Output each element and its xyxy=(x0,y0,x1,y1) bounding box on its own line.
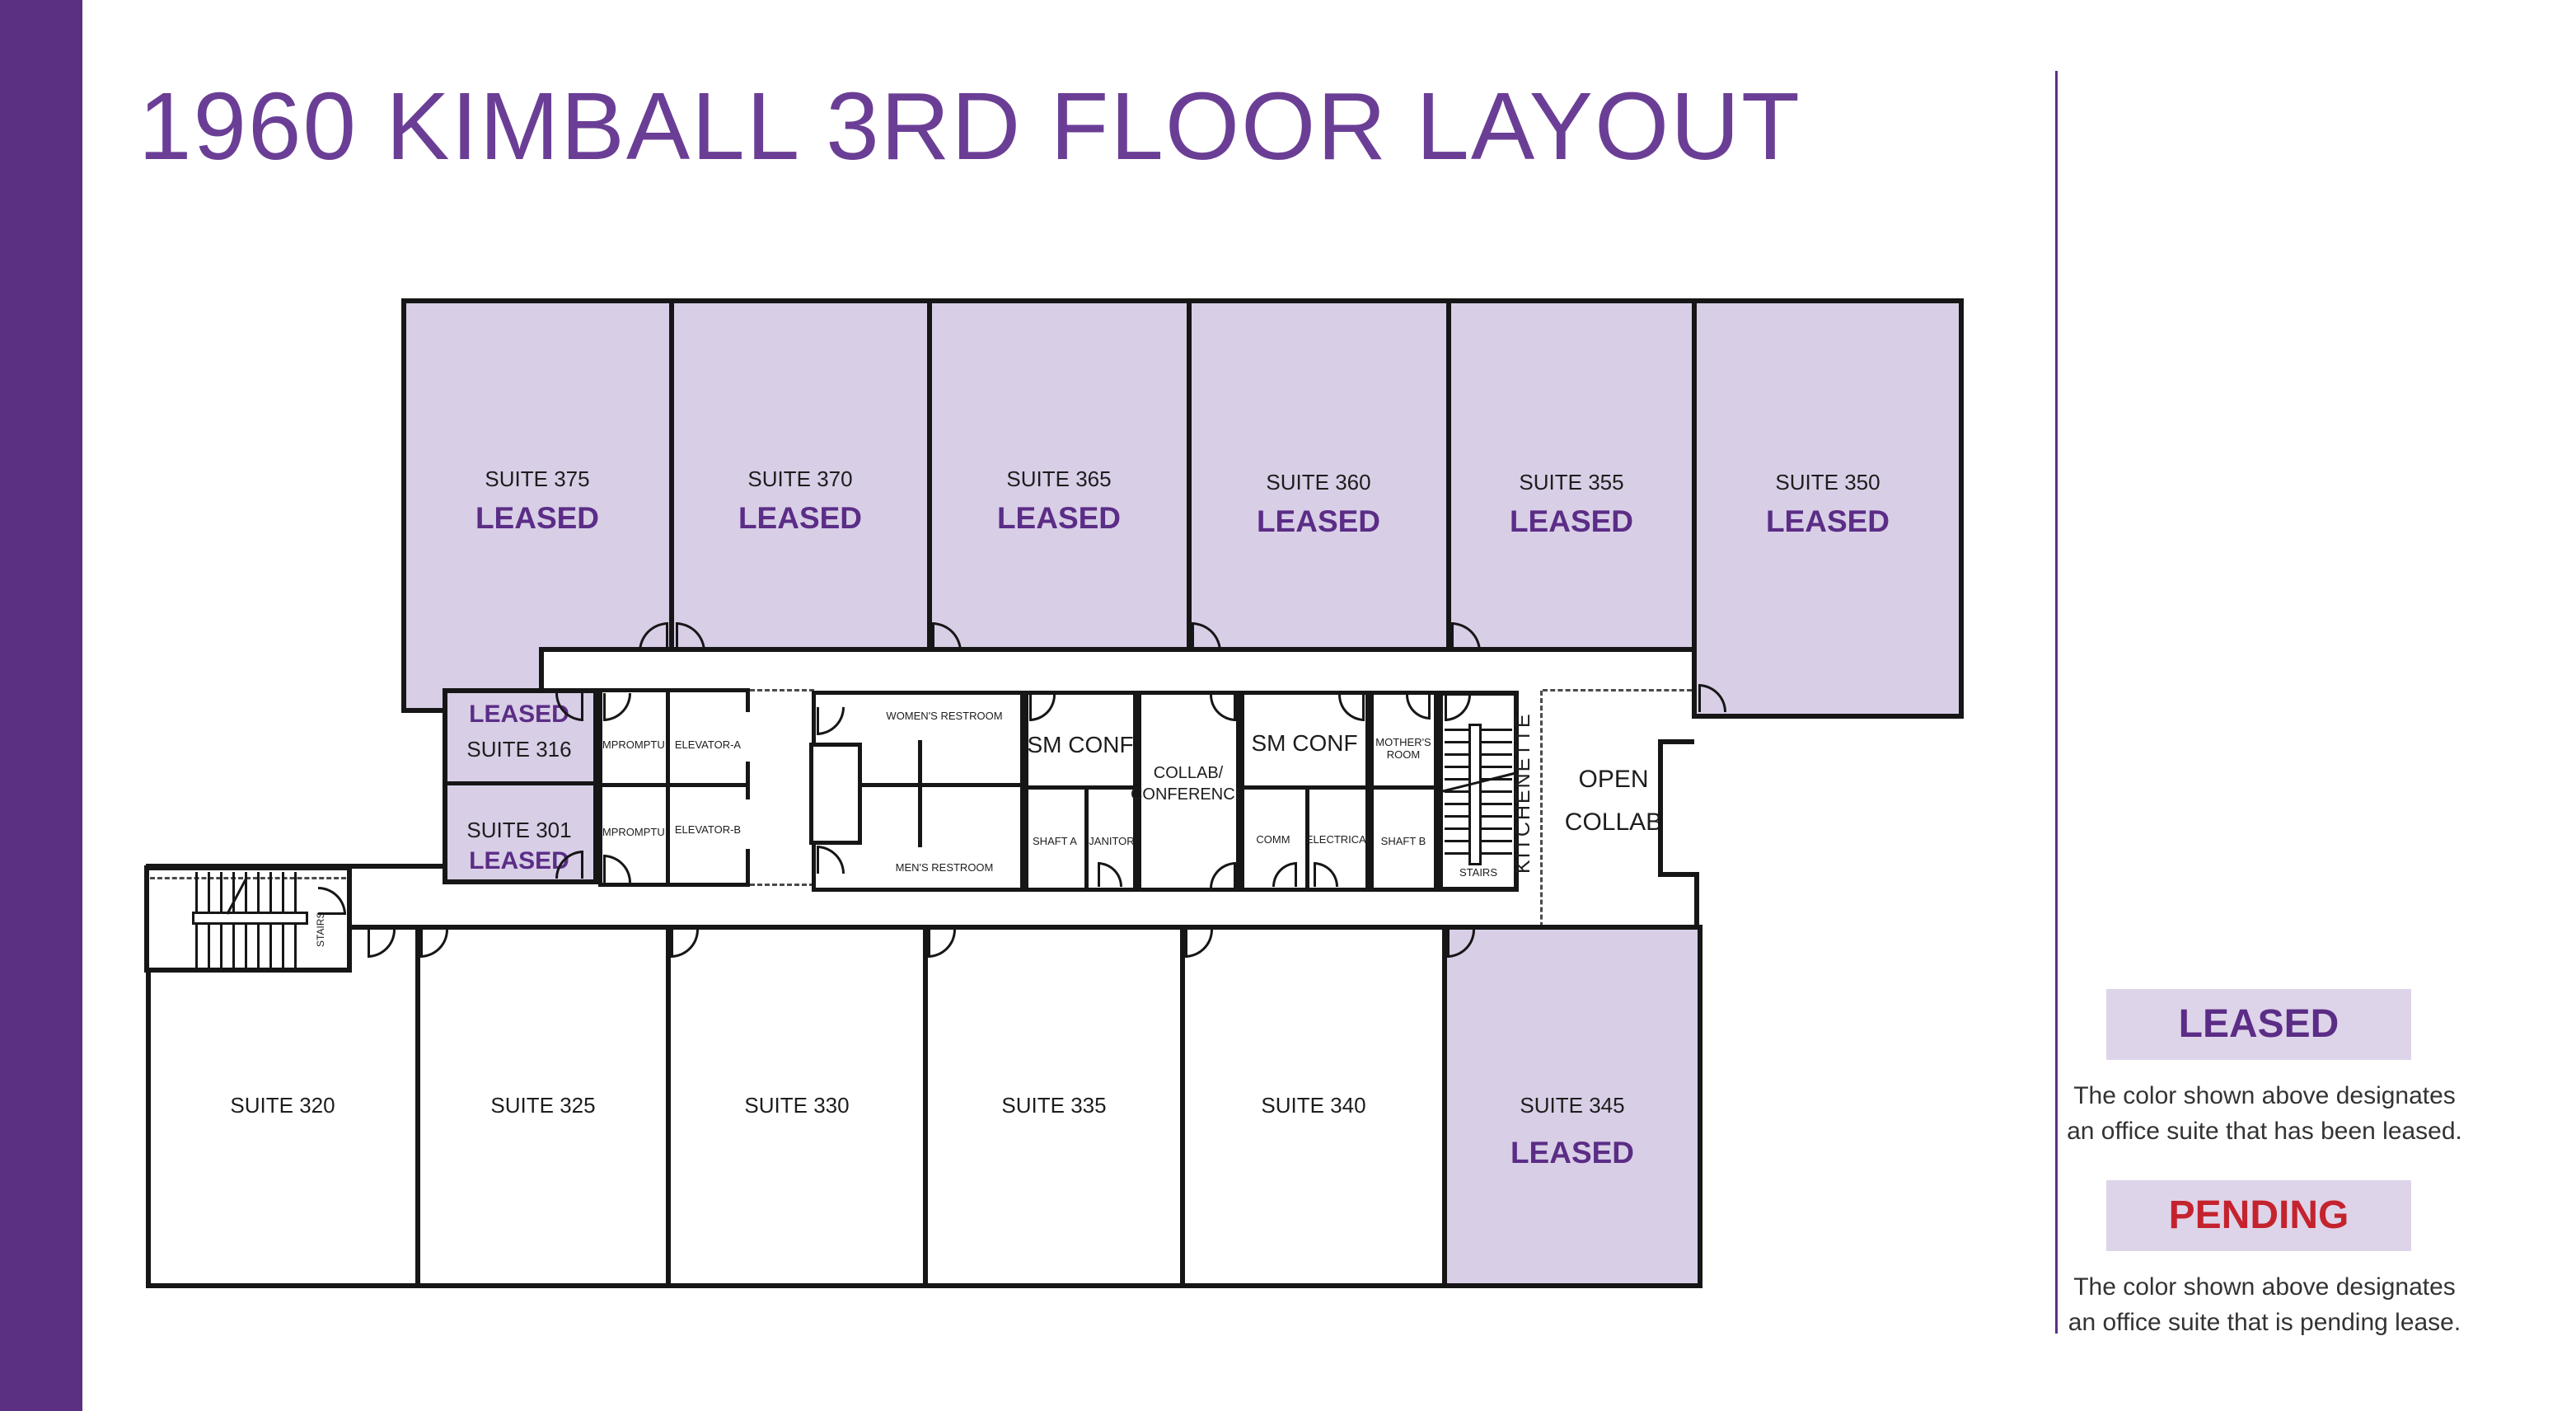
label-suite-301-name: SUITE 301 xyxy=(437,818,602,842)
dashed-boundary xyxy=(750,884,814,886)
label-sm-conf-1: SM CONF xyxy=(1006,732,1155,758)
label-womens-restroom: WOMEN'S RESTROOM xyxy=(862,710,1027,722)
label-suite-350-status: LEASED xyxy=(1745,504,1910,540)
wall xyxy=(445,781,596,785)
wall xyxy=(918,740,922,847)
label-suite-355-status: LEASED xyxy=(1489,504,1654,540)
label-open-collab-line1: OPEN xyxy=(1578,766,1648,793)
label-suite-360-status: LEASED xyxy=(1236,504,1401,540)
label-suite-320-name: SUITE 320 xyxy=(200,1093,365,1118)
label-suite-335-name: SUITE 335 xyxy=(972,1093,1136,1118)
label-suite-345-status: LEASED xyxy=(1490,1136,1655,1171)
label-suite-340-name: SUITE 340 xyxy=(1231,1093,1396,1118)
legend-leased-description: The color shown above designates an offi… xyxy=(2017,1078,2512,1149)
label-mens-restroom: MEN'S RESTROOM xyxy=(862,861,1027,874)
label-impromptu-a: IMPROMPTU xyxy=(595,738,669,751)
dashed-boundary xyxy=(1543,689,1692,691)
label-suite-345-name: SUITE 345 xyxy=(1490,1093,1655,1118)
label-suite-370-name: SUITE 370 xyxy=(718,466,883,491)
label-suite-325-name: SUITE 325 xyxy=(461,1093,625,1118)
page-title: 1960 KIMBALL 3RD FLOOR LAYOUT xyxy=(138,71,1801,181)
room-impromptu-elevators xyxy=(598,688,750,887)
legend-pending-desc-line1: The color shown above designates xyxy=(2073,1273,2456,1301)
stair-treads xyxy=(195,872,305,915)
label-open-collab-line2: COLLAB xyxy=(1565,809,1662,836)
label-elevator-b: ELEVATOR-B xyxy=(667,823,749,836)
label-shaft-b: SHAFT B xyxy=(1362,835,1445,847)
legend-pending-desc-line2: an office suite that is pending lease. xyxy=(2068,1309,2461,1336)
label-collab-line1: COLLAB/ xyxy=(1154,764,1223,782)
label-suite-360-name: SUITE 360 xyxy=(1236,470,1401,495)
label-suite-365-name: SUITE 365 xyxy=(977,466,1141,491)
legend-leased-desc-line2: an office suite that has been leased. xyxy=(2067,1118,2462,1145)
stair-stringer xyxy=(1468,724,1482,865)
wall xyxy=(601,783,747,787)
label-suite-375-status: LEASED xyxy=(455,501,620,537)
label-elevator-a: ELEVATOR-A xyxy=(667,738,749,751)
label-suite-355-name: SUITE 355 xyxy=(1489,470,1654,495)
legend-pending-description: The color shown above designates an offi… xyxy=(2017,1269,2512,1340)
label-suite-375-name: SUITE 375 xyxy=(455,466,620,491)
stair-stringer xyxy=(192,912,308,925)
dashed-boundary xyxy=(750,689,814,691)
stair-treads xyxy=(195,925,305,968)
wall xyxy=(857,783,1022,787)
wall xyxy=(666,691,670,884)
legend-leased-desc-line1: The color shown above designates xyxy=(2073,1082,2456,1109)
label-suite-316-name: SUITE 316 xyxy=(437,737,602,762)
floor-plan-page: 1960 KIMBALL 3RD FLOOR LAYOUT SUITE 375 … xyxy=(0,0,2576,1411)
label-suite-365-status: LEASED xyxy=(977,501,1141,537)
label-impromptu-b: IMPROMPTU xyxy=(595,826,669,838)
label-sm-conf-2: SM CONF xyxy=(1230,730,1379,757)
label-stairs-core: STAIRS xyxy=(1437,866,1520,879)
room-mothers-shaft-b xyxy=(1370,691,1438,892)
label-suite-330-name: SUITE 330 xyxy=(714,1093,879,1118)
restroom-alcove xyxy=(809,743,862,845)
label-mothers-line2: ROOM xyxy=(1387,748,1420,761)
label-suite-370-status: LEASED xyxy=(718,501,883,537)
label-mothers-line1: MOTHER'S xyxy=(1375,736,1431,748)
wall xyxy=(1694,872,1699,931)
elevator-b-opening xyxy=(742,799,752,849)
label-suite-350-name: SUITE 350 xyxy=(1745,470,1910,495)
legend-leased-swatch: LEASED xyxy=(2106,989,2411,1060)
label-mothers-room: MOTHER'S ROOM xyxy=(1362,736,1445,761)
elevator-a-opening xyxy=(742,712,752,762)
legend-pending-swatch: PENDING xyxy=(2106,1180,2411,1251)
label-collab-line2: CONFERENCE xyxy=(1131,785,1246,804)
brand-sidebar xyxy=(0,0,82,1411)
wall-jog-bracket xyxy=(1658,739,1694,877)
wall xyxy=(1372,785,1436,790)
